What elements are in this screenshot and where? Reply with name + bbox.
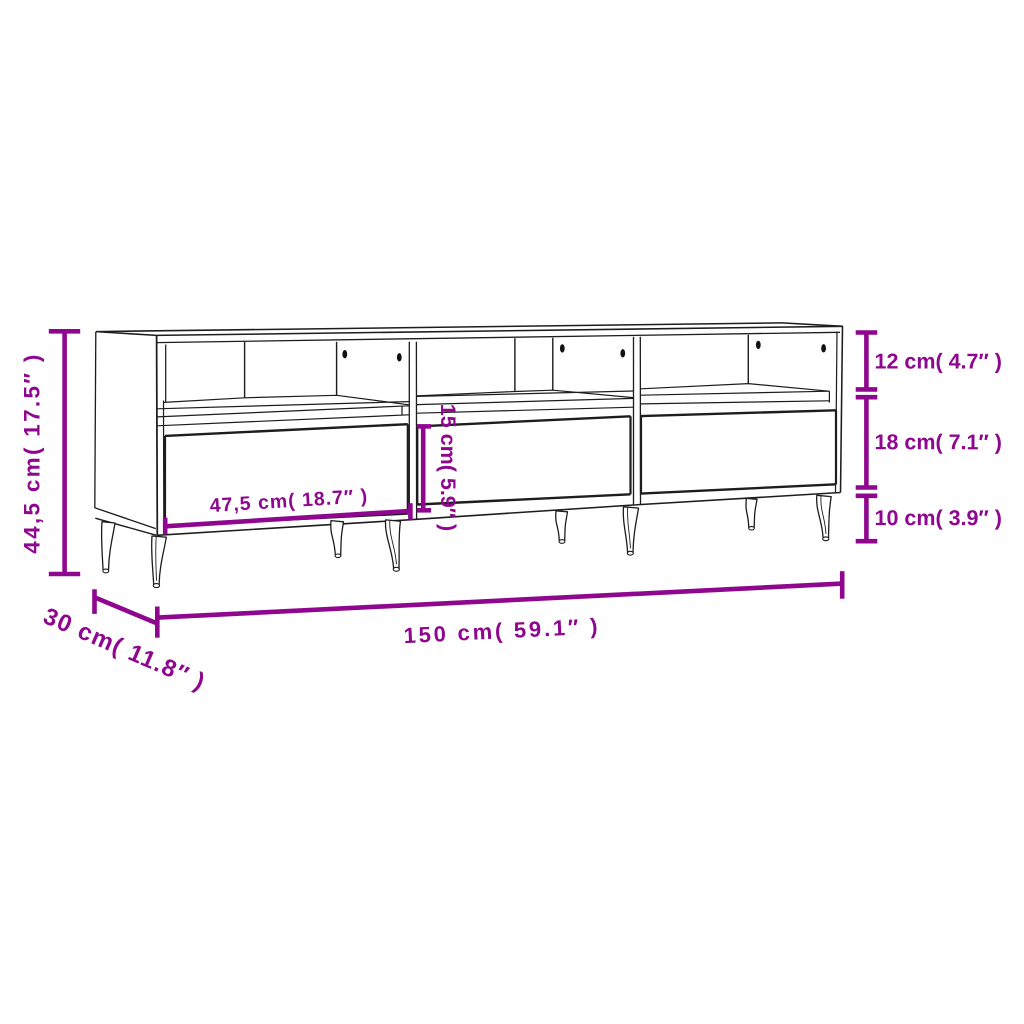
svg-text:18 cm( 7.1″ ): 18 cm( 7.1″ ) <box>874 430 1001 454</box>
svg-text:10 cm( 3.9″ ): 10 cm( 3.9″ ) <box>874 506 1001 530</box>
svg-text:44,5 cm( 17.5″ ): 44,5 cm( 17.5″ ) <box>19 352 44 553</box>
svg-text:12 cm( 4.7″ ): 12 cm( 4.7″ ) <box>874 349 1001 373</box>
svg-text:15 cm( 5.9″ ): 15 cm( 5.9″ ) <box>436 404 460 531</box>
